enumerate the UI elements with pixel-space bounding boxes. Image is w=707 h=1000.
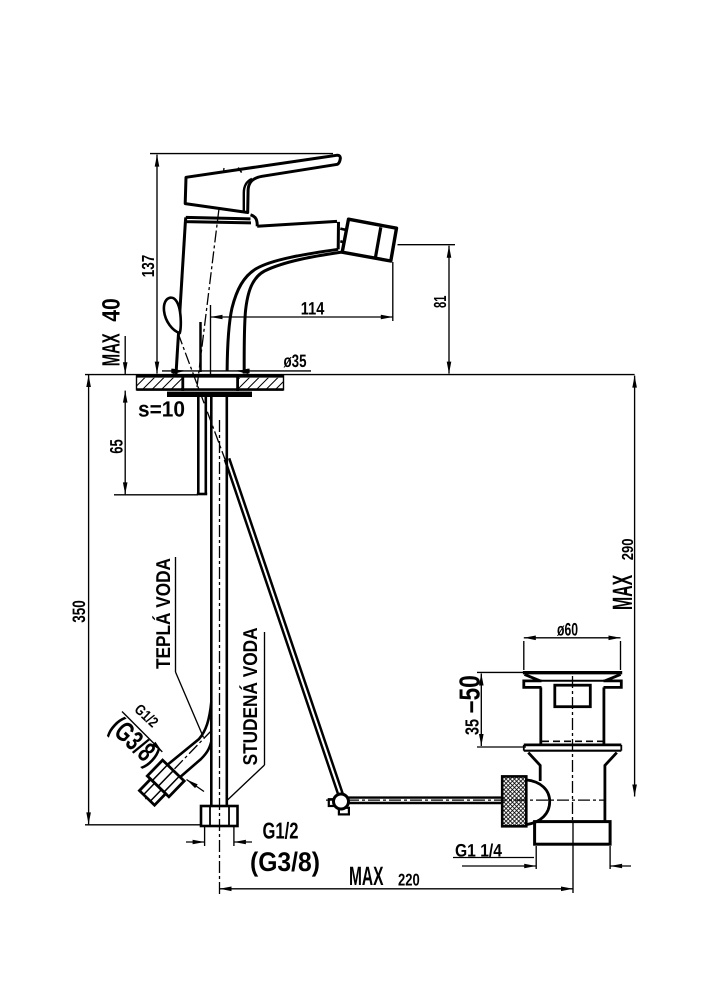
svg-text:40: 40 bbox=[98, 298, 126, 322]
svg-text:35: 35 bbox=[463, 719, 484, 735]
svg-text:s=10: s=10 bbox=[138, 397, 185, 422]
svg-text:81: 81 bbox=[430, 295, 450, 308]
svg-text:290: 290 bbox=[620, 538, 637, 560]
svg-text:65: 65 bbox=[107, 439, 127, 454]
svg-text:114: 114 bbox=[301, 299, 325, 319]
svg-text:ø60: ø60 bbox=[557, 620, 578, 640]
svg-text:MAX: MAX bbox=[349, 861, 384, 891]
svg-text:(G3/8): (G3/8) bbox=[250, 847, 320, 877]
svg-text:MAX: MAX bbox=[607, 575, 638, 610]
svg-text:STUDENÁ VODA: STUDENÁ VODA bbox=[239, 627, 262, 765]
svg-text:–50: –50 bbox=[455, 675, 487, 713]
svg-text:G1/2: G1/2 bbox=[263, 818, 299, 844]
svg-text:137: 137 bbox=[138, 255, 158, 278]
svg-text:MAX: MAX bbox=[98, 333, 126, 366]
svg-text:TEPLÁ VODA: TEPLÁ VODA bbox=[152, 558, 175, 669]
svg-text:G1 1/4: G1 1/4 bbox=[455, 841, 502, 861]
svg-text:ø35: ø35 bbox=[284, 351, 307, 371]
svg-text:220: 220 bbox=[398, 871, 420, 890]
svg-text:350: 350 bbox=[69, 600, 89, 623]
